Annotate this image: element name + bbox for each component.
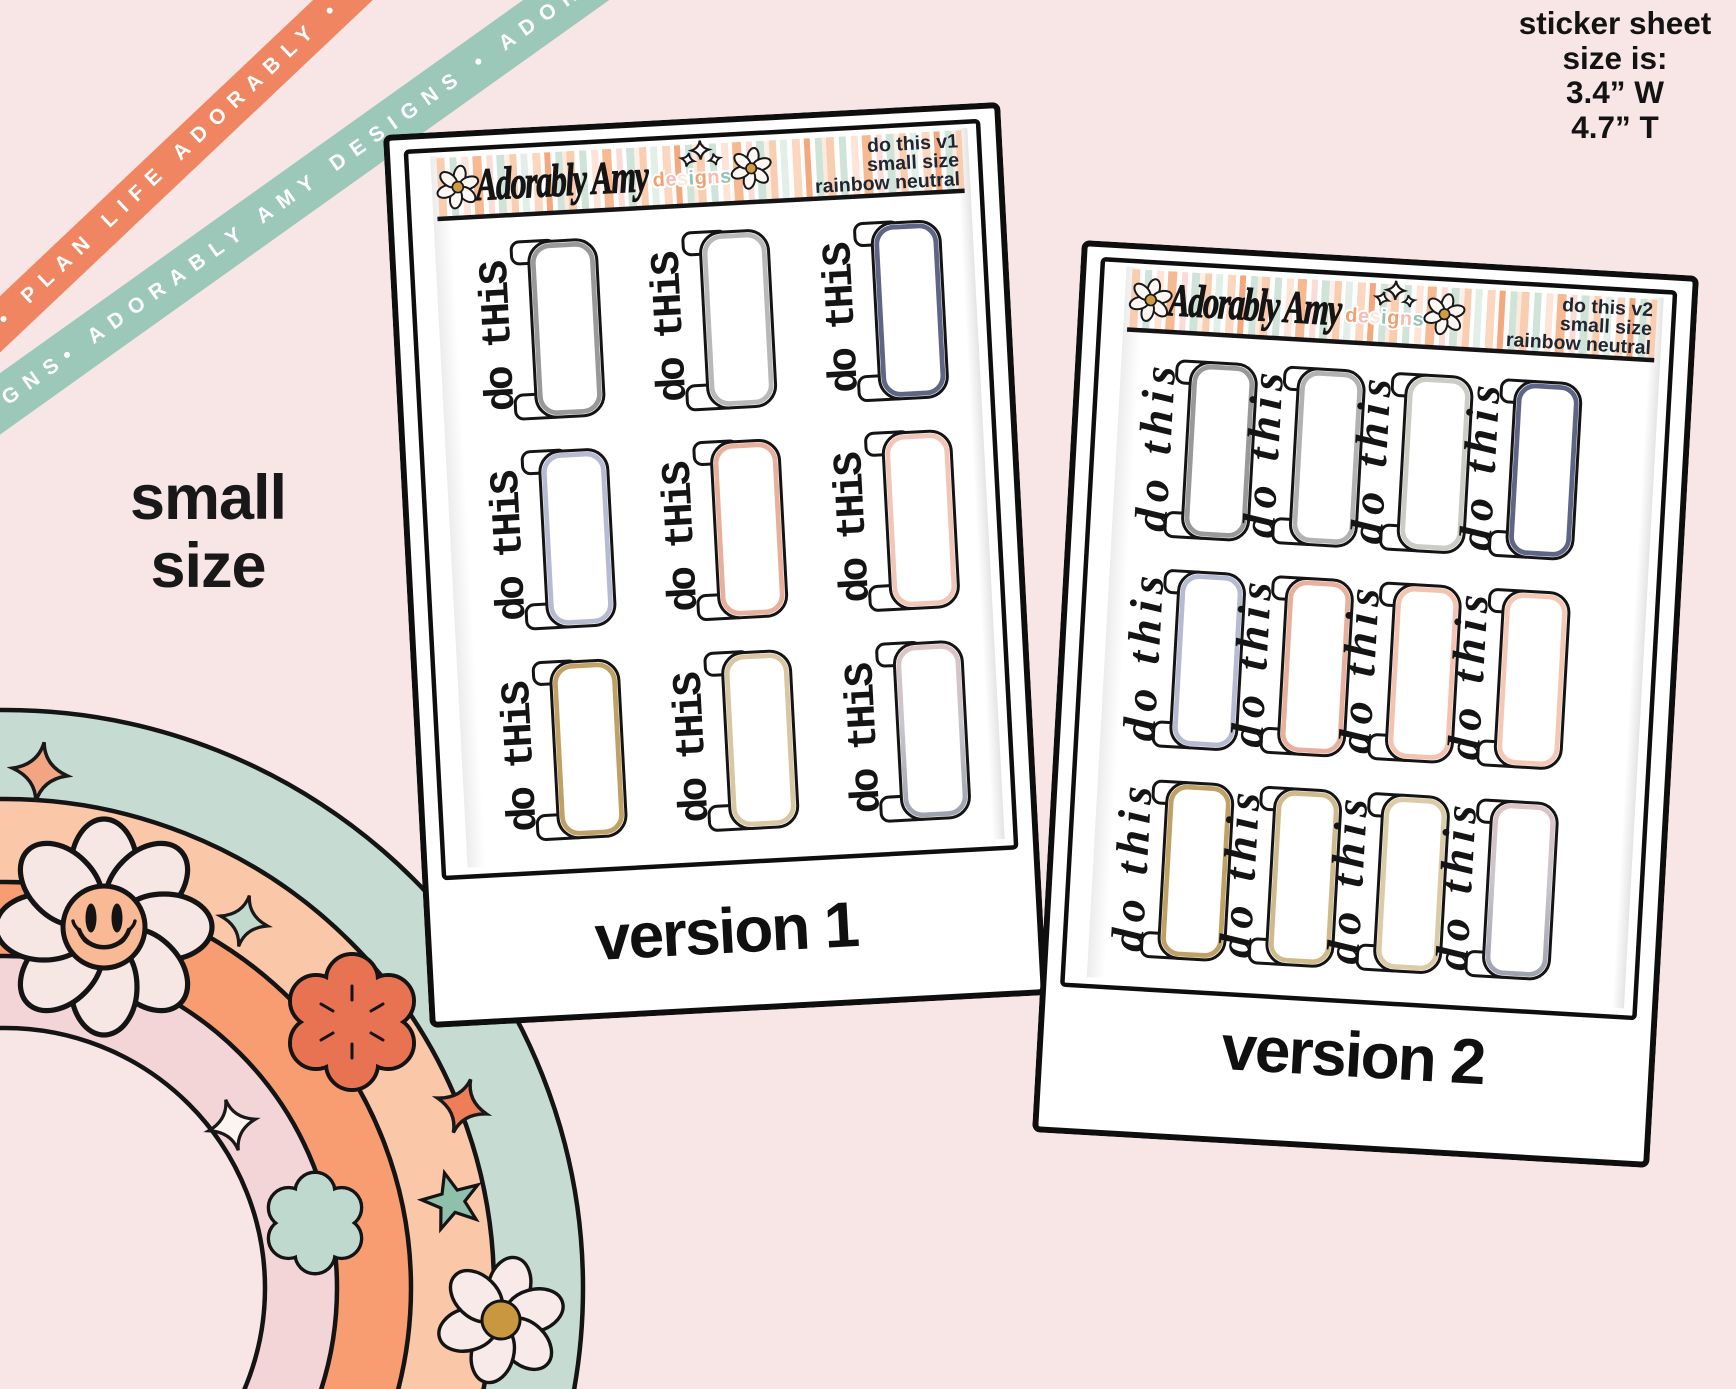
svg-text:do this: do this	[1329, 580, 1390, 755]
svg-text:Adorably Amy: Adorably Amy	[472, 150, 650, 210]
svg-text:do tHiS: do tHiS	[656, 460, 710, 613]
svg-text:version 2: version 2	[1220, 1011, 1487, 1098]
svg-text:designs: designs	[652, 165, 732, 191]
svg-text:Adorably Amy: Adorably Amy	[1165, 274, 1343, 335]
svg-text:do tHiS: do tHiS	[816, 241, 870, 394]
svg-text:do this: do this	[1101, 778, 1162, 953]
svg-text:designs: designs	[1345, 304, 1425, 331]
svg-text:do this: do this	[1438, 587, 1499, 762]
svg-text:do tHiS: do tHiS	[473, 259, 527, 412]
svg-text:do this: do this	[1113, 568, 1174, 743]
svg-text:do tHiS: do tHiS	[667, 671, 721, 824]
svg-text:do this: do this	[1317, 791, 1378, 966]
svg-text:do tHiS: do tHiS	[484, 469, 538, 622]
svg-text:do this: do this	[1449, 377, 1510, 552]
svg-text:do this: do this	[1125, 358, 1186, 533]
svg-text:do this: do this	[1341, 371, 1402, 546]
svg-text:do this: do this	[1209, 785, 1270, 960]
svg-text:do tHiS: do tHiS	[838, 661, 892, 814]
svg-text:do this: do this	[1221, 574, 1282, 749]
svg-text:do this: do this	[1233, 364, 1294, 539]
svg-text:version 1: version 1	[593, 888, 860, 974]
svg-text:do tHiS: do tHiS	[827, 451, 881, 604]
svg-text:do tHiS: do tHiS	[644, 250, 698, 403]
svg-text:do this: do this	[1426, 797, 1487, 972]
svg-text:do tHiS: do tHiS	[495, 680, 549, 833]
